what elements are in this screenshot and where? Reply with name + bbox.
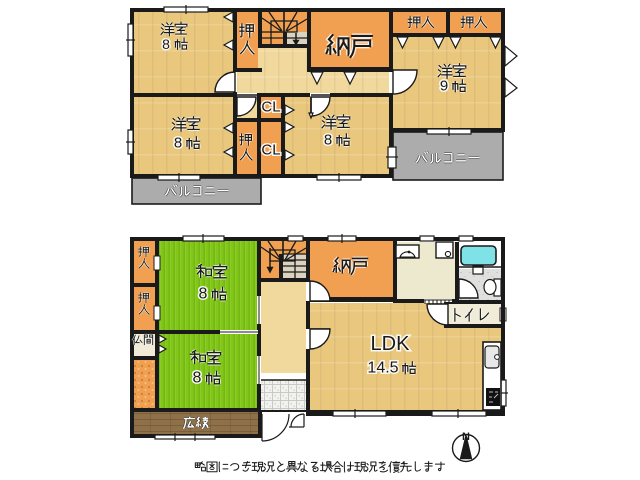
svg-text:8: 8	[162, 36, 170, 52]
svg-text:9: 9	[440, 78, 448, 95]
svg-text:LDK: LDK	[371, 333, 411, 355]
svg-text:8: 8	[174, 135, 182, 152]
svg-text:8: 8	[193, 370, 202, 387]
svg-text:8: 8	[324, 132, 332, 149]
svg-text:CL: CL	[261, 99, 280, 116]
svg-text:CL: CL	[261, 142, 280, 159]
svg-text:14.5: 14.5	[367, 360, 398, 377]
svg-text:8: 8	[199, 286, 208, 303]
